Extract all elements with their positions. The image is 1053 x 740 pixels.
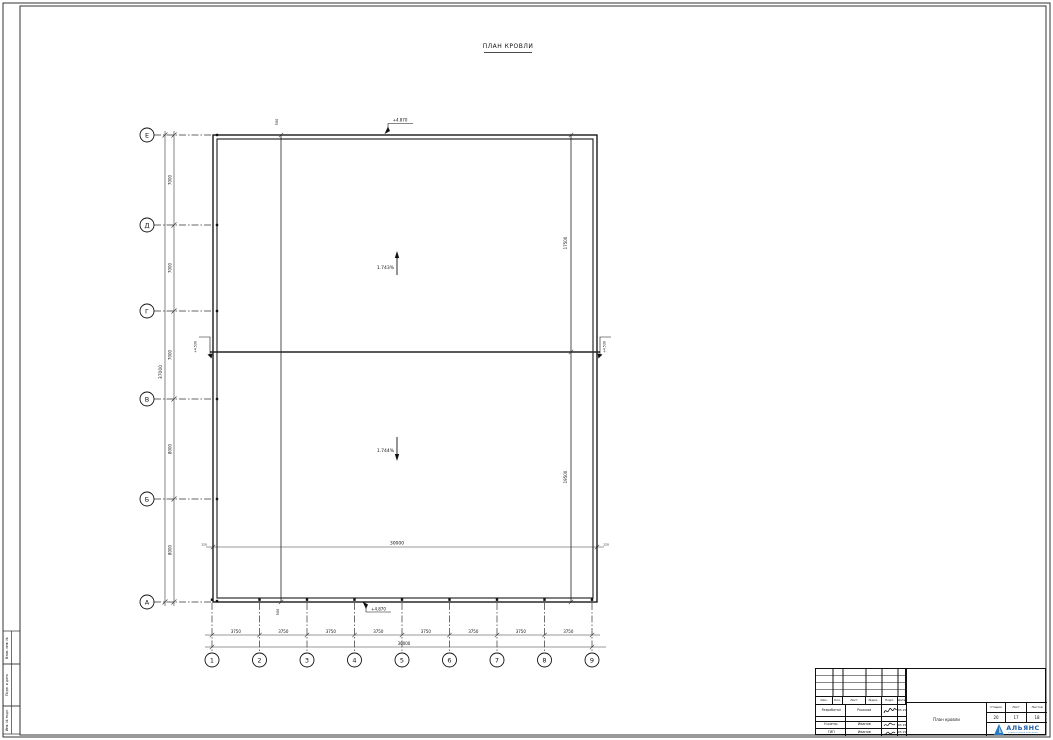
company-logo-cell: АЛЬЯНС строительная компания (986, 723, 1047, 736)
stamp-role: Разработал (816, 705, 846, 717)
svg-text:8: 8 (542, 656, 546, 664)
dim-right-upper: 17500 (563, 236, 568, 249)
svg-text:В: В (145, 395, 149, 403)
dim-mid-total: 30000 (390, 541, 404, 547)
slope-label-lower: 1.744% (377, 448, 395, 454)
level-mid-right-value: +4.530 (603, 341, 607, 353)
stamp-name: Иванов (846, 722, 882, 729)
svg-text:3750: 3750 (421, 629, 432, 634)
svg-text:3750: 3750 (516, 629, 527, 634)
level-bottom-value: +4.870 (371, 607, 386, 612)
stamp-header-kol: Кол. (833, 697, 843, 705)
bottom-axis-wall-dots (211, 599, 593, 601)
dim-left-segment: 7000 (168, 262, 173, 273)
dim-offset-bottom: 500 (276, 609, 280, 616)
stamp-stage-value: 20 (986, 713, 1006, 723)
stamp-date: 03.15 (898, 729, 906, 736)
left-axis-labels: Е Д Г В Б А (144, 131, 149, 606)
margin-box-label: Подп. и дата (5, 674, 9, 696)
company-subtitle: строительная компания (1008, 732, 1038, 734)
roof-lines (210, 135, 600, 602)
stamp-date: 03.15 (898, 705, 906, 717)
stamp-name: Рыжков (846, 705, 882, 717)
svg-text:3: 3 (305, 656, 309, 664)
left-dimension-lines (163, 131, 177, 606)
stamp-role: Н.контр. (816, 722, 846, 729)
slope-arrow-up (395, 251, 399, 275)
margin-box-label: Взам. инв. № (5, 637, 9, 659)
level-mid-left-value: +4.530 (194, 341, 198, 353)
stamp-sheets-value: 18 (1027, 713, 1047, 723)
dim-mid-end: 120 (603, 543, 609, 547)
dim-mid-end: 120 (201, 543, 207, 547)
level-mark-top (385, 124, 414, 135)
slope-label-upper: 1.743% (377, 265, 395, 271)
svg-text:3750: 3750 (373, 629, 384, 634)
svg-text:3750: 3750 (468, 629, 479, 634)
svg-text:1: 1 (210, 656, 214, 664)
dim-left-segment: 7000 (168, 349, 173, 360)
svg-text:3750: 3750 (278, 629, 289, 634)
stamp-role: ГИП (816, 729, 846, 736)
stamp-sheet-value: 17 (1006, 713, 1027, 723)
svg-text:3750: 3750 (231, 629, 242, 634)
dim-right-lower: 19500 (563, 470, 568, 483)
margin-box-label: Инв. № подл. (5, 709, 9, 731)
dim-left-segment: 8000 (168, 443, 173, 454)
signature (882, 729, 898, 736)
signature (882, 722, 898, 729)
stamp-name: Иванов (846, 729, 882, 736)
level-mark-mid-left (199, 337, 213, 359)
svg-text:Б: Б (145, 495, 149, 503)
stamp-designation-cell (906, 669, 1047, 703)
svg-text:А: А (145, 598, 150, 606)
title-block: Изм. Кол. Лист №док. Подп. Дата Разработ… (815, 668, 1046, 735)
stamp-sheet-label: Лист (1006, 703, 1027, 713)
bottom-axis-labels: 1 2 3 4 5 6 7 8 9 (210, 656, 594, 664)
svg-text:6: 6 (447, 656, 451, 664)
stamp-header-podp: Подп. (882, 697, 898, 705)
dim-left-total: 37000 (158, 365, 164, 379)
building-outline (213, 135, 597, 602)
svg-text:5: 5 (400, 656, 404, 664)
stamp-sheets-label: Листов (1027, 703, 1047, 713)
slope-arrow-down (395, 437, 399, 461)
stamp-header-izm: Изм. (816, 697, 833, 705)
dim-bottom-total: 30000 (398, 641, 411, 646)
svg-text:Г: Г (145, 307, 149, 315)
stamp-date: 03.15 (898, 722, 906, 729)
svg-text:2: 2 (257, 656, 261, 664)
page-title: ПЛАН КРОВЛИ (483, 43, 534, 50)
company-logo-icon (994, 724, 1004, 735)
signature (882, 705, 898, 717)
stamp-header-dok: №док. (866, 697, 882, 705)
title-block-change-grid (816, 669, 906, 697)
svg-text:9: 9 (590, 656, 594, 664)
svg-text:Д: Д (144, 221, 149, 229)
mid-dimension-line (206, 545, 604, 549)
left-axis-bubbles (140, 128, 154, 609)
dim-left-segment: 7000 (168, 174, 173, 185)
level-top-value: +4.870 (393, 118, 408, 123)
svg-text:3750: 3750 (563, 629, 574, 634)
stamp-stage-label: Стадия (986, 703, 1006, 713)
drawing-sheet: Взам. инв. № Подп. и дата Инв. № подл. П… (0, 0, 1053, 740)
roof-plan-drawing: Взам. инв. № Подп. и дата Инв. № подл. П… (0, 0, 1053, 740)
svg-text:7: 7 (495, 656, 499, 664)
svg-text:Е: Е (145, 131, 149, 139)
dim-left-segment: 8000 (168, 544, 173, 555)
dim-offset-top: 500 (275, 119, 279, 126)
svg-text:4: 4 (352, 656, 356, 664)
stamp-header-list: Лист (843, 697, 866, 705)
svg-text:3750: 3750 (326, 629, 337, 634)
company-name: АЛЬЯНС (1006, 725, 1040, 732)
stamp-header-data: Дата (898, 697, 906, 705)
stamp-drawing-title: План кровли (906, 703, 986, 736)
